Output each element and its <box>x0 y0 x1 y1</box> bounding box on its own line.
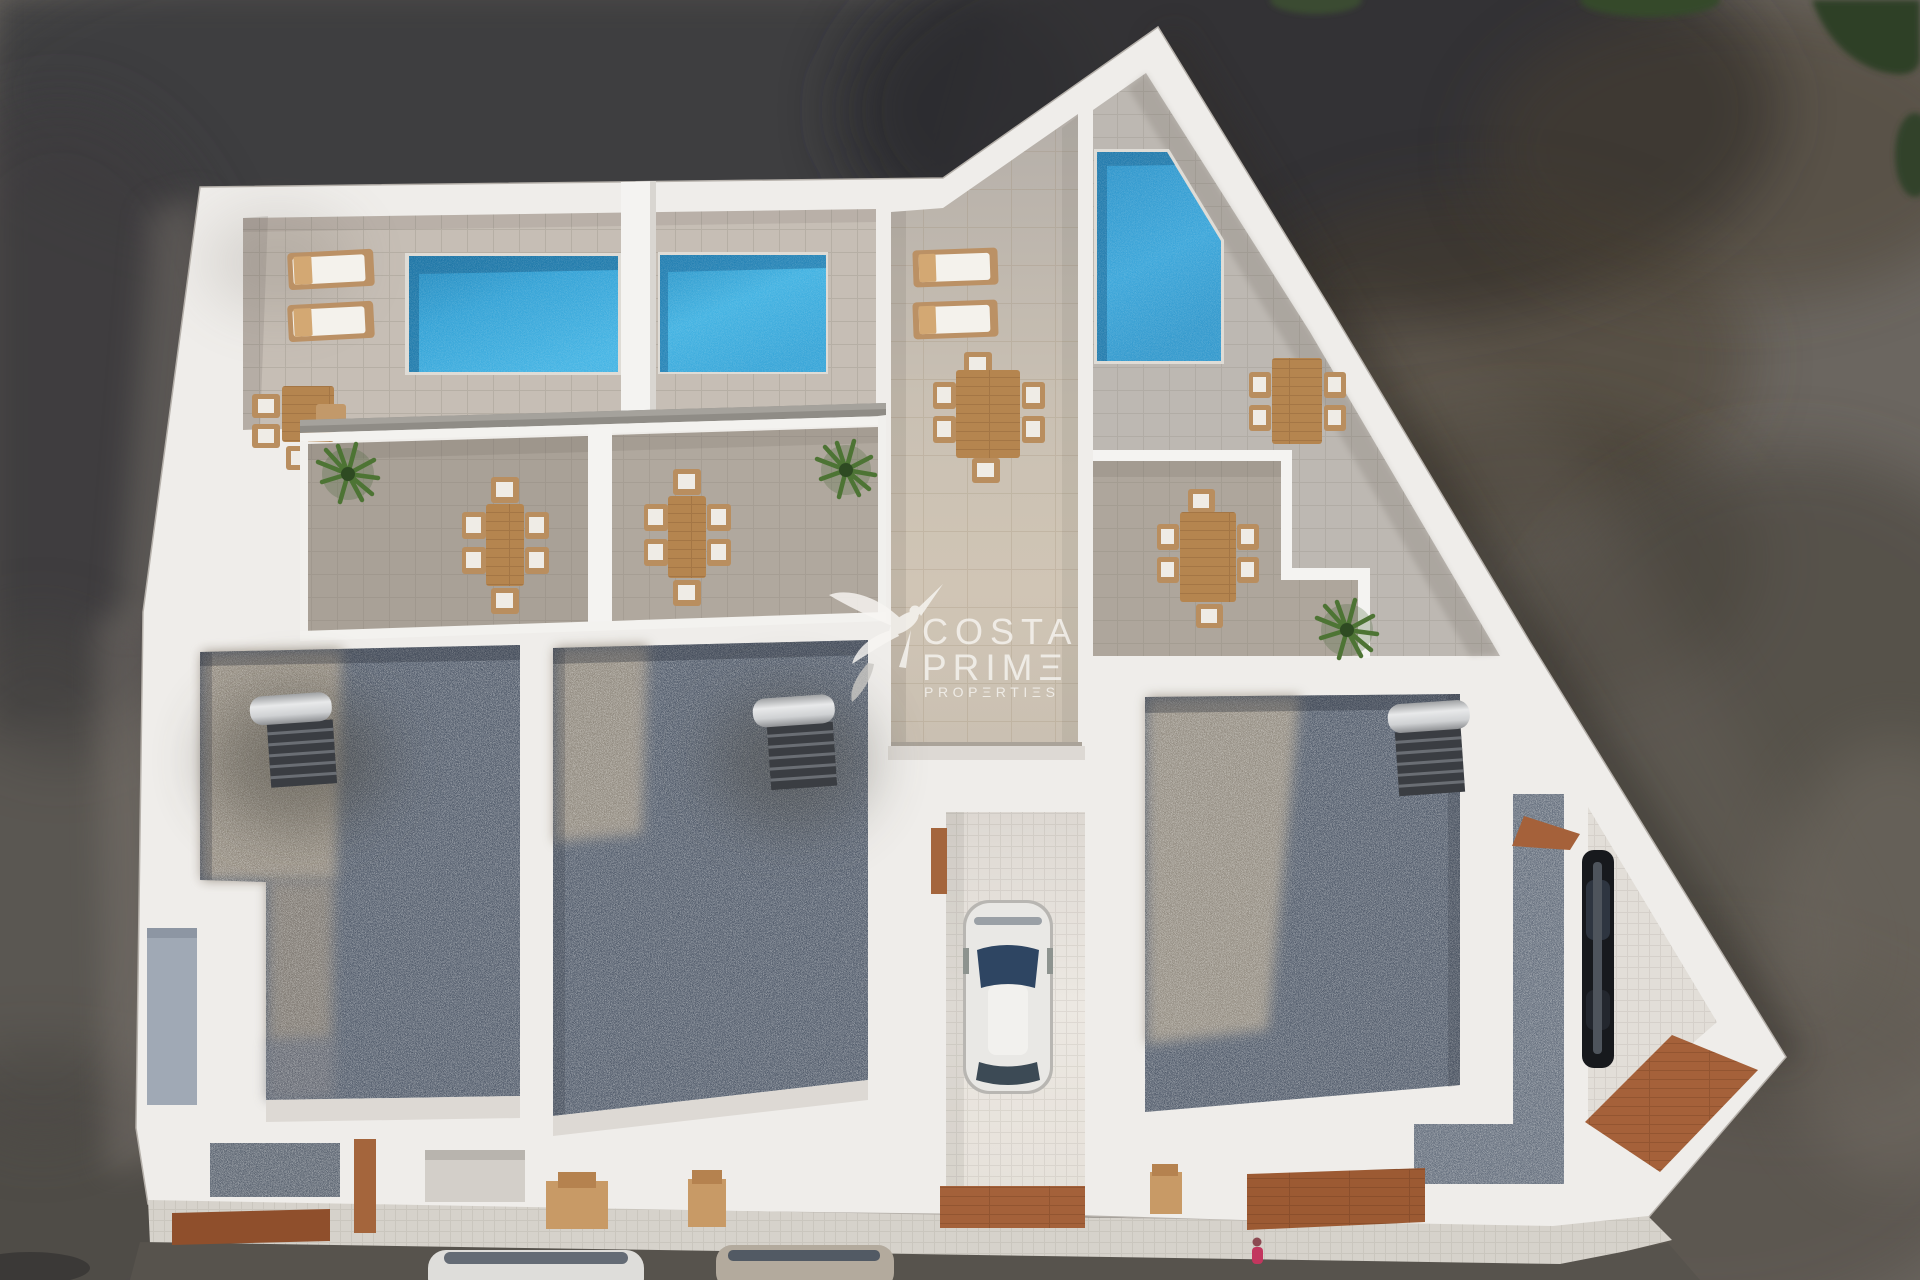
svg-text:PROPΞRTIΞS: PROPΞRTIΞS <box>924 684 1060 700</box>
svg-text:PRIMΞ: PRIMΞ <box>922 647 1069 688</box>
svg-text:COSTA: COSTA <box>922 611 1078 652</box>
